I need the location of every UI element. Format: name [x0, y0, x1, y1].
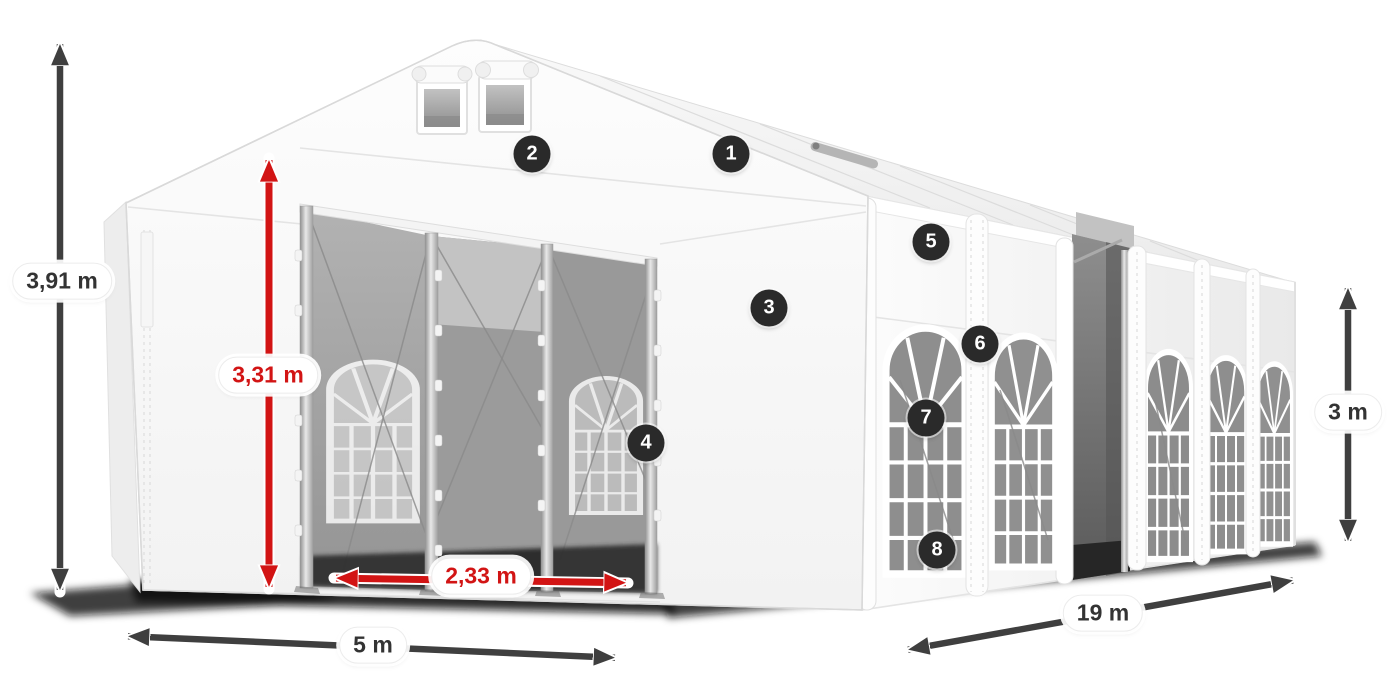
part-badge-3: 3: [751, 290, 788, 327]
front-doorway-1: [303, 209, 431, 590]
part-badge-5: 5: [913, 224, 950, 261]
part-badge-6: 6: [962, 326, 999, 363]
front-center-bay: [431, 236, 545, 591]
part-badge-1: 1: [713, 136, 750, 173]
tent-dimension-diagram: 3,91 m 3,31 m 2,33 m 5 m 19 m 3 m 1 2 3 …: [0, 0, 1400, 700]
rolled-curtain: [1056, 238, 1073, 584]
front-doorway-2: [545, 247, 657, 593]
side-length-label: 19 m: [1063, 595, 1143, 632]
total-height-label: 3,91 m: [12, 263, 112, 300]
part-badge-7: 7: [908, 400, 945, 437]
entrance-width-label: 2,33 m: [431, 558, 531, 595]
part-badge-2: 2: [514, 136, 551, 173]
entrance-height-label: 3,31 m: [218, 357, 318, 394]
front-width-label: 5 m: [339, 627, 407, 664]
part-badge-8: 8: [919, 532, 956, 569]
part-badge-4: 4: [628, 425, 665, 462]
side-doorway-open: [1056, 234, 1130, 584]
side-height-label: 3 m: [1314, 394, 1382, 431]
tent-illustration: [0, 0, 1400, 700]
